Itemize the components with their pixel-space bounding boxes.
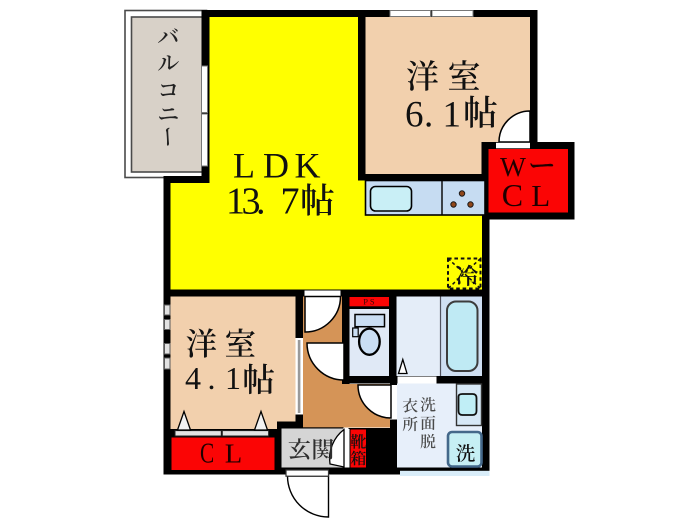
svg-text:1: 1 — [443, 94, 462, 135]
svg-text:.: . — [424, 94, 433, 135]
svg-text:D: D — [263, 146, 289, 186]
svg-text:C: C — [200, 438, 214, 469]
svg-text:C: C — [502, 177, 523, 213]
svg-text:.: . — [208, 360, 216, 396]
svg-text:S: S — [370, 296, 375, 306]
svg-text:L: L — [233, 146, 255, 186]
svg-text:1: 1 — [225, 360, 241, 396]
svg-text:.: . — [256, 181, 266, 223]
svg-text:4: 4 — [185, 360, 201, 396]
svg-text:6: 6 — [405, 94, 424, 135]
svg-text:K: K — [295, 146, 321, 186]
svg-text:L: L — [225, 438, 243, 468]
svg-text:L: L — [531, 178, 550, 213]
svg-text:P: P — [363, 296, 368, 306]
svg-text:7: 7 — [281, 181, 300, 223]
